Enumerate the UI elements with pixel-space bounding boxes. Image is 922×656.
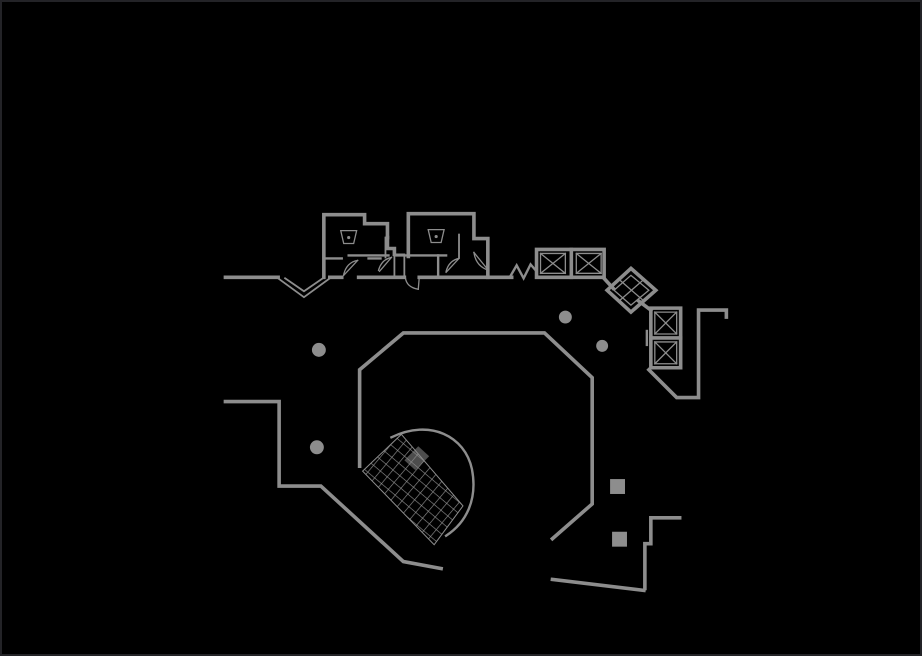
elevator-bank-right bbox=[647, 308, 681, 368]
restroom-left bbox=[324, 215, 395, 278]
wall-break-symbol bbox=[510, 264, 537, 278]
lower-right-walls bbox=[552, 518, 679, 591]
elevator-cell-icon bbox=[655, 342, 677, 364]
elevator-bank-top bbox=[537, 249, 605, 277]
stair-fan bbox=[363, 430, 474, 545]
square-columns bbox=[610, 479, 627, 547]
elevator-cell-icon bbox=[655, 312, 677, 334]
toilet-icon bbox=[428, 230, 444, 243]
toilet-icon bbox=[341, 231, 357, 244]
floor-plan-canvas bbox=[2, 2, 920, 654]
elevator-cell-icon bbox=[541, 253, 566, 273]
door-swing bbox=[344, 257, 392, 275]
elevator-cell-icon bbox=[576, 253, 601, 273]
elevator-diamond bbox=[603, 268, 656, 312]
entry-notch bbox=[278, 278, 330, 297]
wall-chase bbox=[349, 254, 446, 277]
floor-plan-viewport bbox=[0, 0, 922, 656]
door-swing bbox=[405, 252, 488, 289]
right-walls bbox=[649, 310, 727, 397]
